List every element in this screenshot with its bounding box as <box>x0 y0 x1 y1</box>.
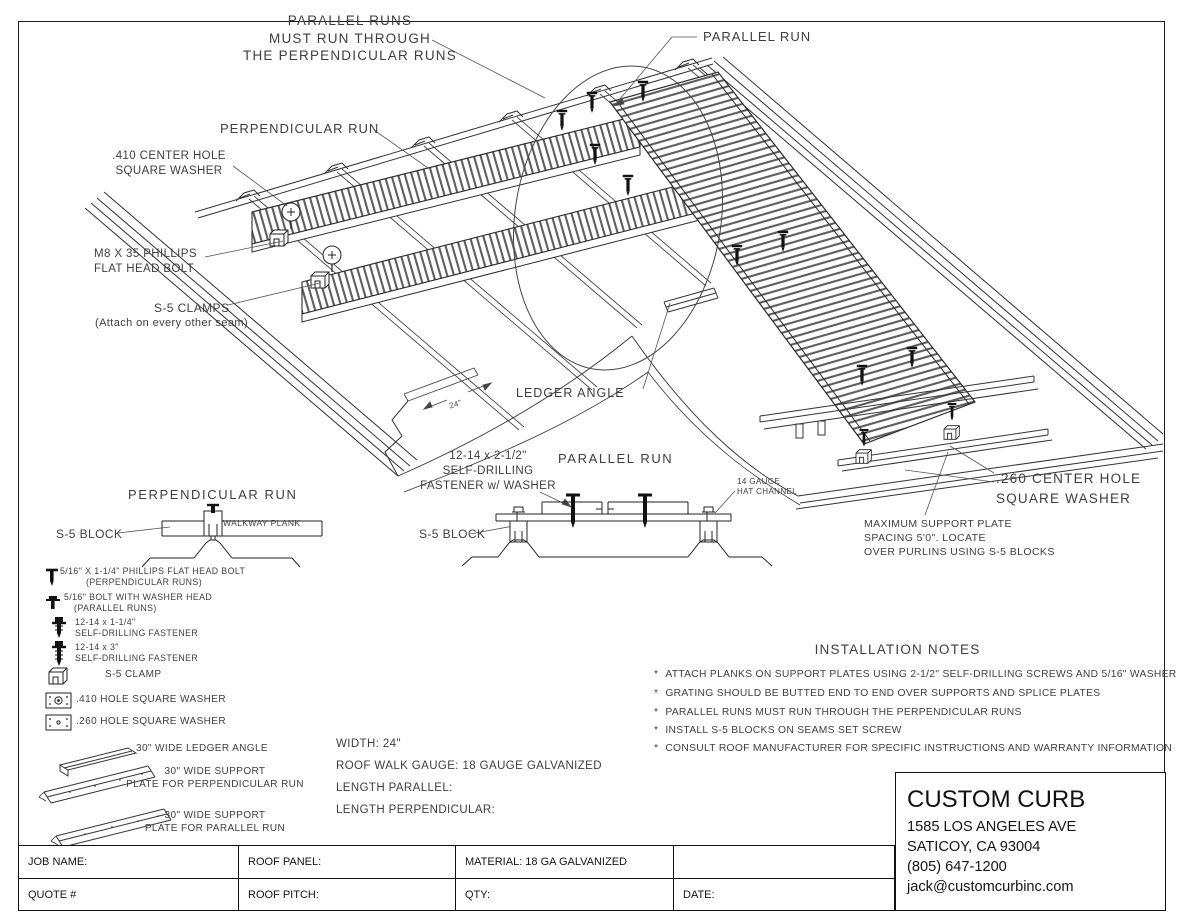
washer-head-bolt-icon <box>46 596 60 609</box>
note-text: ATTACH PLANKS ON SUPPORT PLATES USING 2-… <box>665 669 1176 680</box>
spec-length-parallel: LENGTH PARALLEL: <box>336 781 453 796</box>
title-block: CUSTOM CURB 1585 LOS ANGELES AVE SATICOY… <box>895 772 1166 911</box>
spec-gauge: ROOF WALK GAUGE: 18 GAUGE GALVANIZED <box>336 759 602 774</box>
ledger-angle-callout: LEDGER ANGLE <box>516 385 625 401</box>
table-cell-roof-pitch: ROOF PITCH: <box>238 878 455 911</box>
table-cell-blank <box>673 845 895 878</box>
note-bullet: * <box>654 743 658 754</box>
square-washer-410-icon <box>46 693 71 708</box>
drawing-sheet: PARALLEL RUNS MUST RUN THROUGH THE PERPE… <box>0 0 1185 913</box>
washer-410-callout: .410 CENTER HOLE SQUARE WASHER <box>100 149 238 179</box>
legend-item-label: 5/16" BOLT WITH WASHER HEAD <box>64 592 212 603</box>
company-email: jack@customcurbinc.com <box>907 877 1073 897</box>
installation-note: *GRATING SHOULD BE BUTTED END TO END OVE… <box>654 688 1100 699</box>
flat-head-bolt-icon <box>46 570 58 586</box>
legend-item-sub: (PARALLEL RUNS) <box>74 603 157 614</box>
installation-note: *PARALLEL RUNS MUST RUN THROUGH THE PERP… <box>654 707 1022 718</box>
table-cell-material: MATERIAL: 18 GA GALVANIZED <box>455 845 673 878</box>
s5-clamps-callout: S-5 CLAMPS <box>154 301 229 317</box>
note-text: PARALLEL RUNS MUST RUN THROUGH THE PERPE… <box>665 707 1021 718</box>
installation-notes-title: INSTALLATION NOTES <box>775 641 1020 659</box>
legend-item-sub: SELF-DRILLING FASTENER <box>75 628 198 639</box>
s5-block-parallel-callout: S-5 BLOCK <box>419 527 485 543</box>
installation-note: *INSTALL S-5 BLOCKS ON SEAMS SET SCREW <box>654 725 902 736</box>
hat-channel-callout: 14 GAUGE HAT CHANNEL <box>737 477 797 498</box>
left-roof-edge <box>85 192 417 476</box>
parallel-run-detail-title: PARALLEL RUN <box>558 451 673 468</box>
legend-item-sub: SELF-DRILLING FASTENER <box>75 653 198 664</box>
table-cell-job-name: JOB NAME: <box>18 845 238 878</box>
company-address2: SATICOY, CA 93004 <box>907 837 1040 857</box>
installation-note: *CONSULT ROOF MANUFACTURER FOR SPECIFIC … <box>654 743 1172 754</box>
self-drilling-fastener-icon <box>52 617 66 638</box>
self-drilling-fastener-long-icon <box>52 641 66 666</box>
legend-item-label: 12-14 x 3" <box>75 642 119 653</box>
legend-item-label: S-5 CLAMP <box>105 668 161 681</box>
company-address1: 1585 LOS ANGELES AVE <box>907 817 1076 837</box>
s5-block-perpendicular-callout: S-5 BLOCK <box>56 527 122 543</box>
legend-item-sub: (PERPENDICULAR RUNS) <box>86 577 202 588</box>
note-bullet: * <box>654 725 658 736</box>
parallel-run-callout: PARALLEL RUN <box>703 29 811 46</box>
legend-item-label: 5/16" X 1-1/4" PHILLIPS FLAT HEAD BOLT <box>60 566 245 577</box>
company-phone: (805) 647-1200 <box>907 857 1007 877</box>
perpendicular-detail-title: PERPENDICULAR RUN <box>128 487 298 504</box>
s5-clamps-sub-callout: (Attach on every other seam) <box>95 316 248 330</box>
table-cell-roof-panel: ROOF PANEL: <box>238 845 455 878</box>
walkway-plank-callout: WALKWAY PLANK <box>223 518 300 529</box>
note-text: CONSULT ROOF MANUFACTURER FOR SPECIFIC I… <box>665 743 1172 754</box>
table-cell-qty: QTY: <box>455 878 673 911</box>
parallel-runs-note: PARALLEL RUNS MUST RUN THROUGH THE PERPE… <box>205 12 495 65</box>
perpendicular-run-callout: PERPENDICULAR RUN <box>220 121 379 138</box>
m8-bolt-callout: M8 X 35 PHILLIPS FLAT HEAD BOLT <box>94 247 197 277</box>
job-info-table: JOB NAME: ROOF PANEL: MATERIAL: 18 GA GA… <box>18 845 895 911</box>
legend-item-label: .410 HOLE SQUARE WASHER <box>76 693 226 706</box>
parallel-run-detail <box>462 495 772 566</box>
perpendicular-run-detail <box>142 505 322 567</box>
s5-clamp-icon <box>49 668 67 684</box>
washer-260-callout: .260 CENTER HOLE SQUARE WASHER <box>996 469 1141 510</box>
company-name: CUSTOM CURB <box>907 784 1085 815</box>
legend-item-label: 30" WIDE LEDGER ANGLE <box>136 742 268 755</box>
note-bullet: * <box>654 669 658 680</box>
table-cell-quote: QUOTE # <box>18 878 238 911</box>
table-cell-date: DATE: <box>673 878 895 911</box>
note-bullet: * <box>654 707 658 718</box>
max-support-callout: MAXIMUM SUPPORT PLATE SPACING 5'0". LOCA… <box>864 517 1055 560</box>
ledger-angle-piece <box>664 288 718 312</box>
note-bullet: * <box>654 688 658 699</box>
legend-item-label: .260 HOLE SQUARE WASHER <box>76 715 226 728</box>
fastener-212-callout: 12-14 x 2-1/2" SELF-DRILLING FASTENER w/… <box>418 449 558 494</box>
spec-length-perpendicular: LENGTH PERPENDICULAR: <box>336 803 495 818</box>
note-text: INSTALL S-5 BLOCKS ON SEAMS SET SCREW <box>665 725 901 736</box>
legend-item-label: 30" WIDE SUPPORT PLATE FOR PARALLEL RUN <box>110 809 320 835</box>
square-washer-260-icon <box>46 715 71 730</box>
spec-width: WIDTH: 24" <box>336 737 401 752</box>
note-text: GRATING SHOULD BE BUTTED END TO END OVER… <box>665 688 1100 699</box>
legend-item-label: 30" WIDE SUPPORT PLATE FOR PERPENDICULAR… <box>110 765 320 791</box>
legend-item-label: 12-14 x 1-1/4" <box>75 617 136 628</box>
installation-note: *ATTACH PLANKS ON SUPPORT PLATES USING 2… <box>654 669 1177 680</box>
